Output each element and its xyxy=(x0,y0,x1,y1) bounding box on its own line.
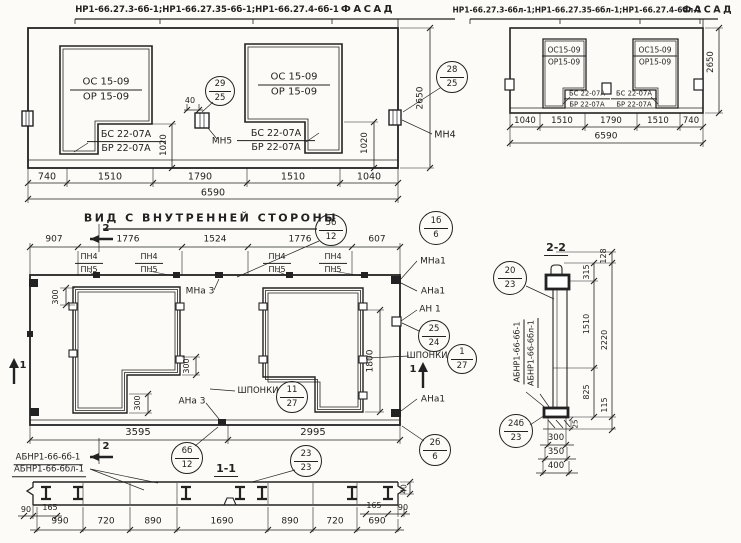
section-title: 2-2 xyxy=(544,242,568,256)
detail-number: 23 xyxy=(294,450,317,462)
mark-bottom: БР 22-07А xyxy=(564,100,610,109)
annotation-layer: НР1-66.27.3-6б-1;НР1-66.27.35-6б-1;НР1-6… xyxy=(0,0,741,543)
lintel-mark: БС 22-07АБР 22-07А xyxy=(87,129,165,155)
anchor-label: АН 1 xyxy=(419,306,441,315)
detail-number: 24б xyxy=(504,420,529,432)
mark-bottom: ПН5 xyxy=(319,264,347,275)
detail-bubble: 1б6 xyxy=(419,211,453,245)
dim-label: 825 xyxy=(583,384,591,399)
blueprint-canvas: НР1-66.27.3-6б-1;НР1-66.27.35-6б-1;НР1-6… xyxy=(0,0,741,543)
dim-label: 1776 xyxy=(289,236,312,245)
sheet-number: 23 xyxy=(301,464,312,473)
detail-number: 11 xyxy=(280,386,303,398)
sheet-number: 23 xyxy=(505,281,516,290)
mark-top: ПН4 xyxy=(75,252,103,264)
detail-bubble: 2б6 xyxy=(419,434,451,466)
detail-number: 1б xyxy=(424,217,449,229)
dim-label: 1040 xyxy=(357,172,381,182)
detail-bubble: 2524 xyxy=(418,320,450,352)
sheet-number: 6 xyxy=(432,453,437,462)
mark-top: ПН4 xyxy=(263,252,291,264)
anchor-label: АНа1 xyxy=(421,396,445,405)
mark-bottom: ПН5 xyxy=(263,264,291,275)
sheet-number: 23 xyxy=(511,434,522,443)
mark-bottom: БР 22-07А xyxy=(237,142,315,154)
dim-label: 165 xyxy=(42,504,57,512)
detail-number: 6б xyxy=(175,447,198,459)
mark-top: БС 22-07А xyxy=(87,129,165,142)
window-mark: ОС15-09ОР15-09 xyxy=(633,46,677,67)
sheet-number: 25 xyxy=(215,94,226,103)
sheet-number: 12 xyxy=(326,233,337,242)
dim-label: 40 xyxy=(400,484,408,494)
dim-label: 300 xyxy=(52,289,60,304)
mark-bottom: БР 22-07А xyxy=(611,100,657,109)
mark-bottom: ОР 15-09 xyxy=(70,91,142,104)
dim-label: 690 xyxy=(368,518,385,527)
mark-top: ОС15-09 xyxy=(542,46,586,57)
dim-label: 2995 xyxy=(300,428,325,438)
keys-label: ШПОНКИ xyxy=(407,352,448,361)
anchor-label: МН5 xyxy=(212,138,232,147)
detail-bubble: 24б23 xyxy=(499,414,533,448)
dim-label: 890 xyxy=(281,518,298,527)
lintel-mark: БС 22-07АБР 22-07А xyxy=(237,128,315,154)
panel-mark: АБНР1-66-6бл-1 xyxy=(12,465,86,477)
dim-label: 300 xyxy=(548,434,564,443)
dim-label: 90 xyxy=(398,504,408,512)
detail-bubble: 6б12 xyxy=(171,442,203,474)
dim-label: 740 xyxy=(683,117,699,126)
anchor-label: АНа1 xyxy=(421,288,445,297)
drawing-title-marks: НР1-66.27.3-6бл-1;НР1-66.27.35-6бл-1;НР1… xyxy=(452,6,701,14)
joint-mark: ПН4ПН5 xyxy=(75,252,103,274)
sheet-number: 27 xyxy=(457,362,468,371)
dim-label-total: 6590 xyxy=(595,133,618,142)
mark-bottom: ПН5 xyxy=(75,264,103,275)
dim-label: 25 xyxy=(573,420,580,429)
dim-label: 90 xyxy=(21,506,31,514)
panel-mark: АБНР1-66-6бл-1 xyxy=(528,318,539,388)
dim-label: 1510 xyxy=(98,172,122,182)
detail-bubble: 127 xyxy=(447,344,477,374)
dim-label: 165 xyxy=(366,502,381,510)
dim-label: 315 xyxy=(583,264,591,279)
dim-label: 740 xyxy=(38,172,56,182)
dim-label: 990 xyxy=(51,518,68,527)
joint-mark: ПН4ПН5 xyxy=(263,252,291,274)
sheet-number: 24 xyxy=(429,339,440,348)
mark-top: БС 22-07А xyxy=(611,89,657,99)
mark-top: ОС15-09 xyxy=(633,46,677,57)
drawing-title-view: ФАСАД xyxy=(682,5,734,15)
lintel-mark: БС 22-07АБР 22-07А xyxy=(564,89,610,108)
section-marker-label: 2 xyxy=(103,224,110,234)
dim-label: 1800 xyxy=(367,350,376,373)
dim-label: 300 xyxy=(183,358,191,373)
mark-bottom: БР 22-07А xyxy=(87,143,165,155)
window-mark: ОС 15-09ОР 15-09 xyxy=(258,72,330,99)
mark-top: БС 22-07А xyxy=(237,128,315,141)
dim-label: 128 xyxy=(600,248,608,263)
dim-label: 720 xyxy=(326,518,343,527)
anchor-label: МНа1 xyxy=(420,258,446,267)
dim-label: 907 xyxy=(45,236,62,245)
window-mark: ОС 15-09ОР 15-09 xyxy=(70,77,142,104)
mark-top: ОС 15-09 xyxy=(258,72,330,86)
section-marker-label: 2 xyxy=(103,442,110,452)
dim-label-height: 2650 xyxy=(417,87,426,110)
sheet-number: 25 xyxy=(447,80,458,89)
detail-bubble: 2323 xyxy=(290,445,322,477)
joint-mark: ПН4ПН5 xyxy=(319,252,347,274)
dim-label: 1690 xyxy=(211,518,234,527)
dim-label: 1790 xyxy=(188,172,212,182)
dim-label: 350 xyxy=(548,448,564,457)
keys-label: ШПОНКИ xyxy=(238,387,279,396)
dim-label: 1524 xyxy=(204,236,227,245)
dim-label: 1040 xyxy=(514,117,536,126)
dim-label-total: 6590 xyxy=(201,188,225,198)
panel-mark: АБНР1-66-6б-1 xyxy=(14,453,83,465)
panel-mark: АБНР1-66-6б-1 xyxy=(514,320,525,385)
dim-label: 1776 xyxy=(117,236,140,245)
mark-top: ОС 15-09 xyxy=(70,77,142,91)
dim-label: 40 xyxy=(185,97,195,105)
anchor-label: АНа 3 xyxy=(178,398,205,407)
sheet-number: 12 xyxy=(182,461,193,470)
detail-number: 25 xyxy=(422,325,445,337)
mark-bottom: ОР15-09 xyxy=(542,57,586,67)
detail-number: 1 xyxy=(451,348,473,360)
section-marker-label: 1 xyxy=(20,361,27,371)
drawing-title-view: ФАСАД xyxy=(341,5,395,15)
sheet-number: 27 xyxy=(287,400,298,409)
lintel-mark: БС 22-07АБР 22-07А xyxy=(611,89,657,108)
sheet-number: 6 xyxy=(433,231,438,240)
dim-label: 1510 xyxy=(647,117,669,126)
detail-bubble: 1127 xyxy=(276,381,308,413)
detail-number: 28 xyxy=(440,66,463,78)
dim-label: 1510 xyxy=(281,172,305,182)
mark-bottom: ОР 15-09 xyxy=(258,86,330,99)
detail-number: 20 xyxy=(498,267,523,279)
dim-label: 3595 xyxy=(125,428,150,438)
detail-bubble: 5б12 xyxy=(315,214,347,246)
dim-label: 300 xyxy=(134,395,142,410)
mark-top: ПН4 xyxy=(319,252,347,264)
mark-bottom: ОР15-09 xyxy=(633,57,677,67)
dim-label: 1020 xyxy=(361,132,370,154)
joint-mark: ПН4ПН5 xyxy=(135,252,163,274)
dim-label: 115 xyxy=(601,397,609,412)
mark-top: ПН4 xyxy=(135,252,163,264)
dim-label: 1790 xyxy=(600,117,622,126)
dim-label: 720 xyxy=(97,518,114,527)
dim-label-height: 2650 xyxy=(707,51,716,73)
detail-bubble: 2023 xyxy=(493,261,527,295)
dim-label: 1510 xyxy=(583,314,591,334)
detail-bubble: 2925 xyxy=(205,76,235,106)
section-title: 1-1 xyxy=(214,463,238,477)
dim-label: 890 xyxy=(144,518,161,527)
anchor-label: МН4 xyxy=(434,130,455,140)
anchor-label: МНа 3 xyxy=(186,288,215,297)
window-mark: ОС15-09ОР15-09 xyxy=(542,46,586,67)
detail-bubble: 2825 xyxy=(436,61,468,93)
mark-top: БС 22-07А xyxy=(564,89,610,99)
mark-bottom: ПН5 xyxy=(135,264,163,275)
dim-label: 607 xyxy=(368,236,385,245)
dim-label: 2220 xyxy=(601,330,609,350)
dim-label: 400 xyxy=(548,462,564,471)
dim-label: 1510 xyxy=(551,117,573,126)
detail-number: 5б xyxy=(319,219,342,231)
detail-number: 29 xyxy=(209,80,231,92)
view-title: ВИД С ВНУТРЕННЕЙ СТОРОНЫ xyxy=(84,213,338,224)
drawing-title-marks: НР1-66.27.3-6б-1;НР1-66.27.35-6б-1;НР1-6… xyxy=(75,6,339,15)
section-marker-label: 1 xyxy=(410,365,417,375)
detail-number: 2б xyxy=(423,439,446,451)
